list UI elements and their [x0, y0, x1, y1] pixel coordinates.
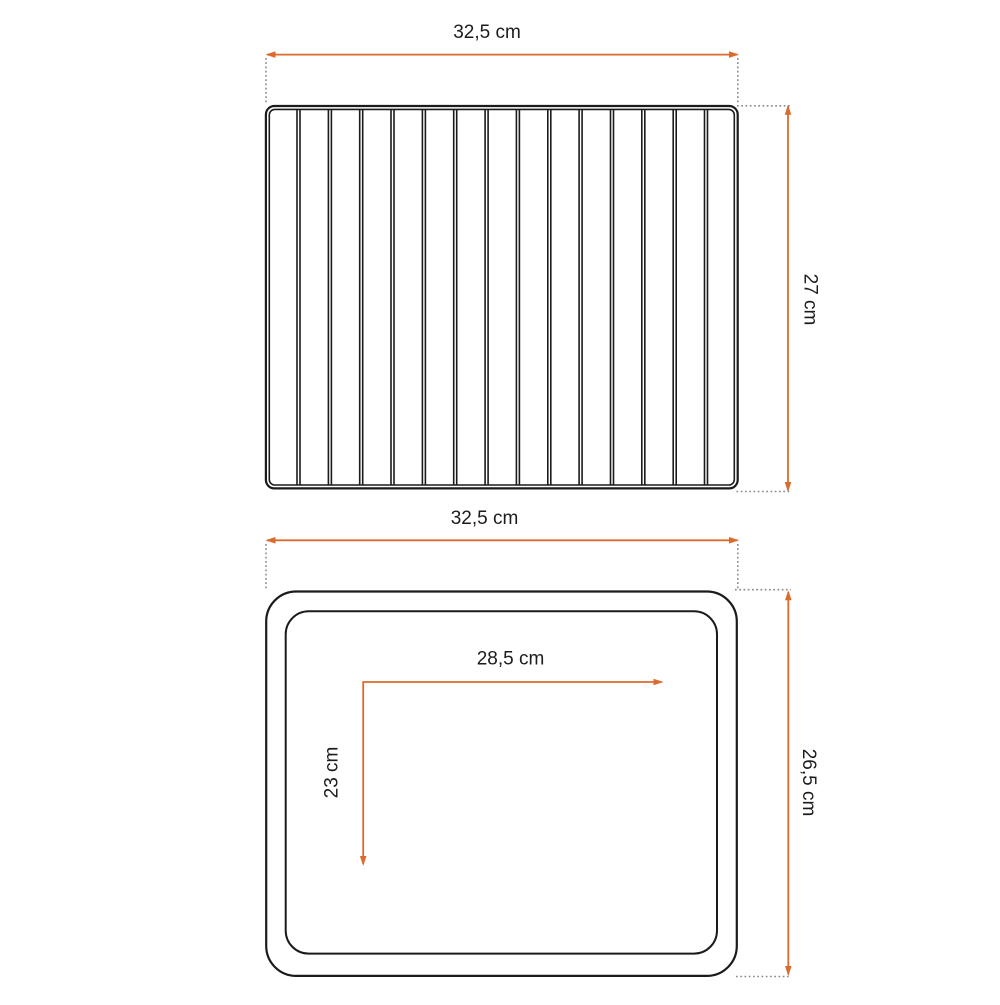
- svg-text:23 cm: 23 cm: [322, 747, 343, 799]
- svg-text:27 cm: 27 cm: [800, 274, 821, 326]
- svg-text:28,5 cm: 28,5 cm: [477, 649, 545, 670]
- svg-text:32,5 cm: 32,5 cm: [453, 22, 521, 43]
- svg-text:32,5 cm: 32,5 cm: [451, 508, 519, 529]
- svg-text:26,5 cm: 26,5 cm: [798, 749, 819, 817]
